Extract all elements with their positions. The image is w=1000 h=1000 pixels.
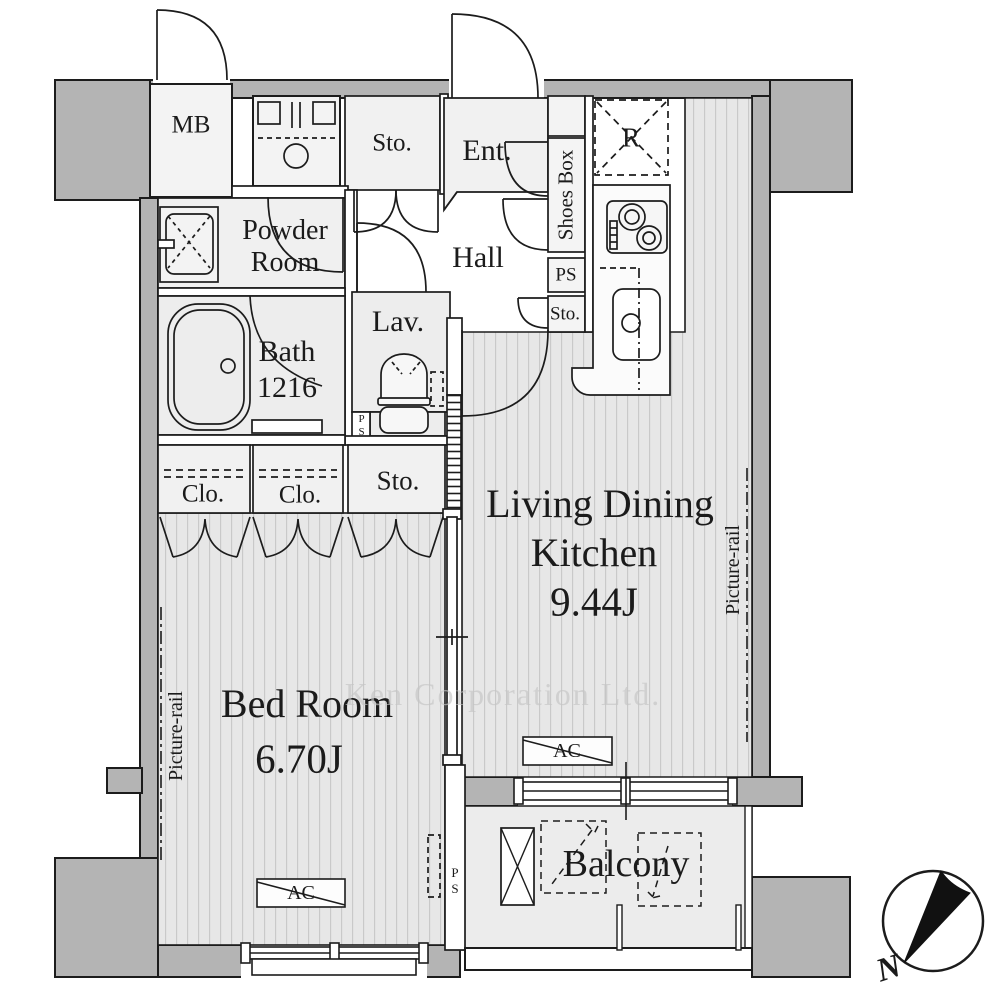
label-ps-lavatory: PS xyxy=(356,413,367,439)
label-bedroom-size: 6.70J xyxy=(255,739,343,780)
label-ac-ldk: AC xyxy=(553,741,581,761)
label-lavatory: Lav. xyxy=(372,307,424,337)
floorplan: MB Sto. Ent. Shoes Box PS Sto. R Hall Po… xyxy=(0,0,1000,1000)
label-powder-room-line2: Room xyxy=(251,249,319,277)
label-refrigerator: R xyxy=(622,125,640,152)
label-powder-room-line1: Powder xyxy=(242,217,328,245)
label-storage-bottom: Sto. xyxy=(377,468,420,495)
label-ldk-line2: Kitchen xyxy=(531,533,658,573)
compass xyxy=(883,871,983,971)
label-ac-bedroom: AC xyxy=(287,883,315,903)
label-ps-upper: PS xyxy=(555,266,576,285)
label-shoes-box: Shoes Box xyxy=(556,150,577,240)
watermark: Ken Corporation Ltd. xyxy=(345,678,661,710)
label-storage-top: Sto. xyxy=(372,131,412,156)
label-ps-balcony: PS xyxy=(449,865,462,897)
label-balcony: Balcony xyxy=(563,845,690,883)
label-picture-rail-right: Picture-rail xyxy=(723,525,743,615)
label-bath: Bath xyxy=(259,337,316,367)
label-hall: Hall xyxy=(452,243,504,273)
label-entrance: Ent. xyxy=(462,136,511,166)
label-ldk-size: 9.44J xyxy=(550,582,638,623)
label-storage-mid: Sto. xyxy=(550,305,580,324)
label-ldk-line1: Living Dining xyxy=(486,484,714,524)
label-picture-rail-left: Picture-rail xyxy=(166,691,186,781)
label-closet2: Clo. xyxy=(279,483,321,508)
label-bath-size: 1216 xyxy=(257,373,317,403)
label-mb: MB xyxy=(172,113,211,138)
label-closet1: Clo. xyxy=(182,482,224,507)
